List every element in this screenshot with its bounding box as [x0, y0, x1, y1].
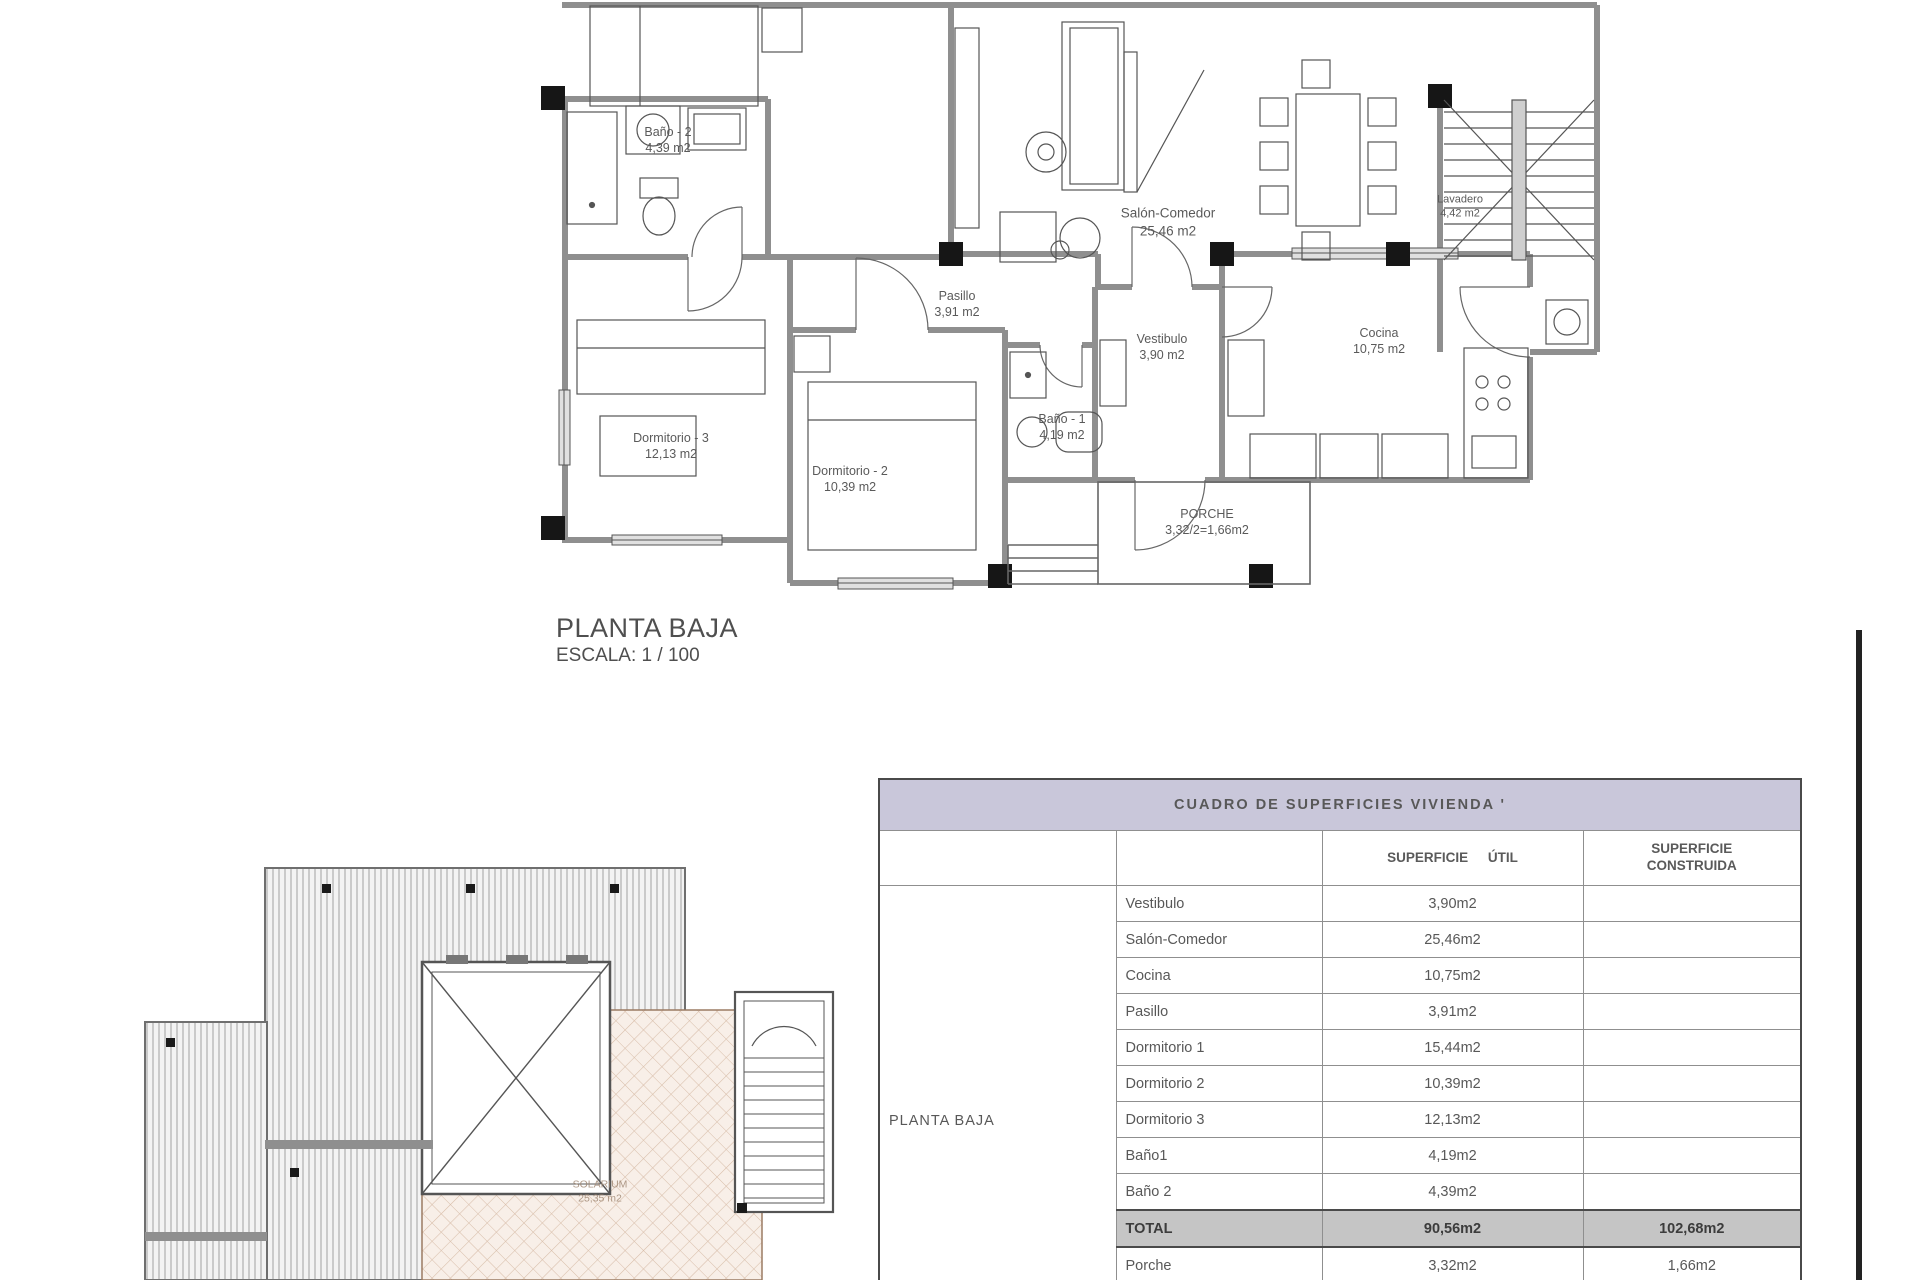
room-label-vestibulo: Vestibulo 3,90 m2 — [1137, 331, 1188, 364]
table-row: PLANTA BAJAVestibulo3,90m2 — [879, 886, 1801, 922]
util-cell: 10,75m2 — [1322, 958, 1583, 994]
room-label-dormitorio3: Dormitorio - 3 12,13 m2 — [633, 430, 709, 463]
room-name: Lavadero — [1437, 193, 1483, 207]
room-area: 4,19 m2 — [1038, 427, 1085, 443]
header-superficie-construida: SUPERFICIE CONSTRUIDA — [1583, 831, 1801, 886]
name-cell: Dormitorio 1 — [1116, 1030, 1322, 1066]
construida-cell — [1583, 1030, 1801, 1066]
util-cell: 15,44m2 — [1322, 1030, 1583, 1066]
room-area: 4,39 m2 — [644, 140, 691, 156]
surfaces-table: CUADRO DE SUPERFICIES VIVIENDA ' SUPERFI… — [878, 778, 1802, 1280]
name-cell: Baño1 — [1116, 1138, 1322, 1174]
room-name: Pasillo — [934, 288, 979, 304]
construida-cell — [1583, 922, 1801, 958]
room-area: 4,42 m2 — [1437, 207, 1483, 221]
name-cell: Salón-Comedor — [1116, 922, 1322, 958]
wall-pillars — [541, 84, 1452, 588]
table-header-row: SUPERFICIE ÚTIL SUPERFICIE CONSTRUIDA — [879, 831, 1801, 886]
bed-dormitorio2 — [794, 336, 976, 550]
table-title-row: CUADRO DE SUPERFICIES VIVIENDA ' — [879, 779, 1801, 831]
util-cell: 3,90m2 — [1322, 886, 1583, 922]
name-cell: Pasillo — [1116, 994, 1322, 1030]
util-cell: 3,91m2 — [1322, 994, 1583, 1030]
header-superficie-util: SUPERFICIE ÚTIL — [1322, 831, 1583, 886]
plan-title: PLANTA BAJA — [556, 613, 738, 644]
architectural-sheet: Baño - 2 4,39 m2 Salón-Comedor 25,46 m2 … — [0, 0, 1920, 1280]
name-cell: Porche — [1116, 1247, 1322, 1280]
room-area: 3,90 m2 — [1137, 347, 1188, 363]
hall-cabinet — [1100, 340, 1126, 406]
util-cell: 4,19m2 — [1322, 1138, 1583, 1174]
construida-cell — [1583, 994, 1801, 1030]
surfaces-table-body: CUADRO DE SUPERFICIES VIVIENDA ' SUPERFI… — [879, 779, 1801, 1280]
bed-dormitorio1 — [590, 6, 802, 106]
roof-skylight — [422, 955, 610, 1194]
room-area: 3,32/2=1,66m2 — [1165, 522, 1249, 538]
construida-cell — [1583, 1174, 1801, 1211]
room-area: 3,91 m2 — [934, 304, 979, 320]
construida-cell: 102,68m2 — [1583, 1210, 1801, 1247]
terrace-area: 25,35 m2 — [573, 1192, 628, 1206]
construida-cell — [1583, 1138, 1801, 1174]
room-label-porche: PORCHE 3,32/2=1,66m2 — [1165, 506, 1249, 539]
room-name: Cocina — [1353, 325, 1405, 341]
sheet-border-line — [1856, 630, 1862, 1280]
room-label-cocina: Cocina 10,75 m2 — [1353, 325, 1405, 358]
construida-cell: 1,66m2 — [1583, 1247, 1801, 1280]
header-empty-floor — [879, 831, 1116, 886]
room-name: Baño - 1 — [1038, 411, 1085, 427]
construida-cell — [1583, 958, 1801, 994]
util-cell: 3,32m2 — [1322, 1247, 1583, 1280]
table-title: CUADRO DE SUPERFICIES VIVIENDA ' — [879, 779, 1801, 831]
room-name: Baño - 2 — [644, 124, 691, 140]
room-name: PORCHE — [1165, 506, 1249, 522]
room-area: 12,13 m2 — [633, 446, 709, 462]
util-cell: 4,39m2 — [1322, 1174, 1583, 1211]
room-label-bano1: Baño - 1 4,19 m2 — [1038, 411, 1085, 444]
util-cell: 25,46m2 — [1322, 922, 1583, 958]
name-cell: TOTAL — [1116, 1210, 1322, 1247]
room-label-bano2: Baño - 2 4,39 m2 — [644, 124, 691, 157]
construida-cell — [1583, 886, 1801, 922]
construida-cell — [1583, 1066, 1801, 1102]
room-name: Dormitorio - 2 — [812, 463, 888, 479]
room-area: 10,75 m2 — [1353, 341, 1405, 357]
floor-group-label: PLANTA BAJA — [879, 886, 1116, 1280]
staircase — [1444, 100, 1594, 260]
plan-scale: ESCALA: 1 / 100 — [556, 645, 700, 667]
room-label-pasillo: Pasillo 3,91 m2 — [934, 288, 979, 321]
header-empty-room — [1116, 831, 1322, 886]
room-name: Salón-Comedor — [1121, 204, 1216, 222]
name-cell: Dormitorio 2 — [1116, 1066, 1322, 1102]
room-label-dormitorio2: Dormitorio - 2 10,39 m2 — [812, 463, 888, 496]
dining-table — [1260, 60, 1396, 260]
roof-stairwell — [735, 992, 833, 1213]
room-label-salon-comedor: Salón-Comedor 25,46 m2 — [1121, 204, 1216, 239]
floor-plan-drawing — [541, 5, 1597, 589]
terrace-name: SOLARIUM — [573, 1178, 628, 1192]
room-area: 10,39 m2 — [812, 479, 888, 495]
name-cell: Baño 2 — [1116, 1174, 1322, 1211]
laundry-fixtures — [1546, 300, 1588, 344]
util-cell: 90,56m2 — [1322, 1210, 1583, 1247]
room-label-lavadero: Lavadero 4,42 m2 — [1437, 193, 1483, 222]
name-cell: Cocina — [1116, 958, 1322, 994]
util-cell: 12,13m2 — [1322, 1102, 1583, 1138]
room-name: Vestibulo — [1137, 331, 1188, 347]
name-cell: Vestibulo — [1116, 886, 1322, 922]
roof-plan-drawing — [145, 868, 833, 1280]
name-cell: Dormitorio 3 — [1116, 1102, 1322, 1138]
roof-terrace-label: SOLARIUM 25,35 m2 — [573, 1178, 628, 1205]
construida-cell — [1583, 1102, 1801, 1138]
kitchen-counter — [1228, 340, 1528, 478]
room-area: 25,46 m2 — [1121, 222, 1216, 240]
room-name: Dormitorio - 3 — [633, 430, 709, 446]
util-cell: 10,39m2 — [1322, 1066, 1583, 1102]
